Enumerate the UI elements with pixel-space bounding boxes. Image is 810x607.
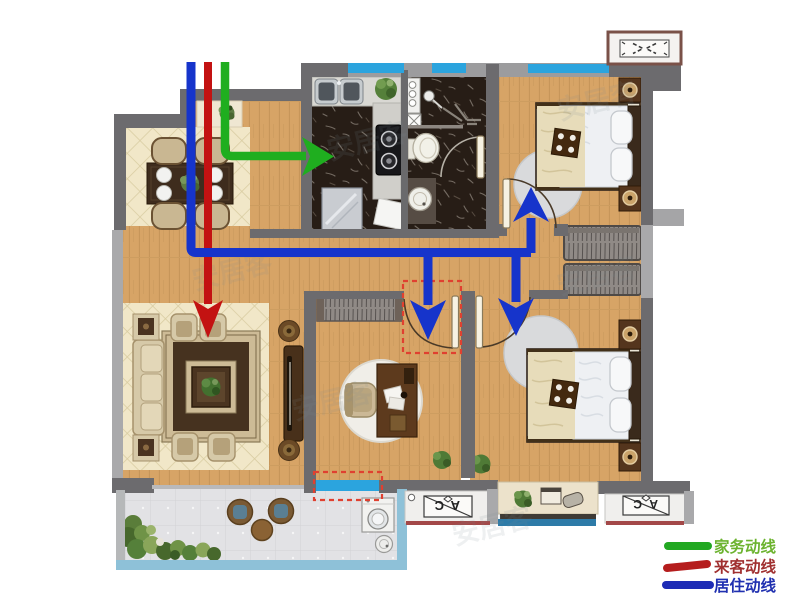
svg-text:居住动线: 居住动线 (714, 576, 777, 595)
svg-text:A: A (450, 498, 460, 513)
svg-text:C: C (633, 497, 642, 511)
svg-text:家务动线: 家务动线 (714, 537, 777, 556)
svg-text:A: A (649, 497, 658, 511)
svg-text:C: C (434, 498, 444, 513)
svg-text:来客动线: 来客动线 (713, 557, 777, 576)
